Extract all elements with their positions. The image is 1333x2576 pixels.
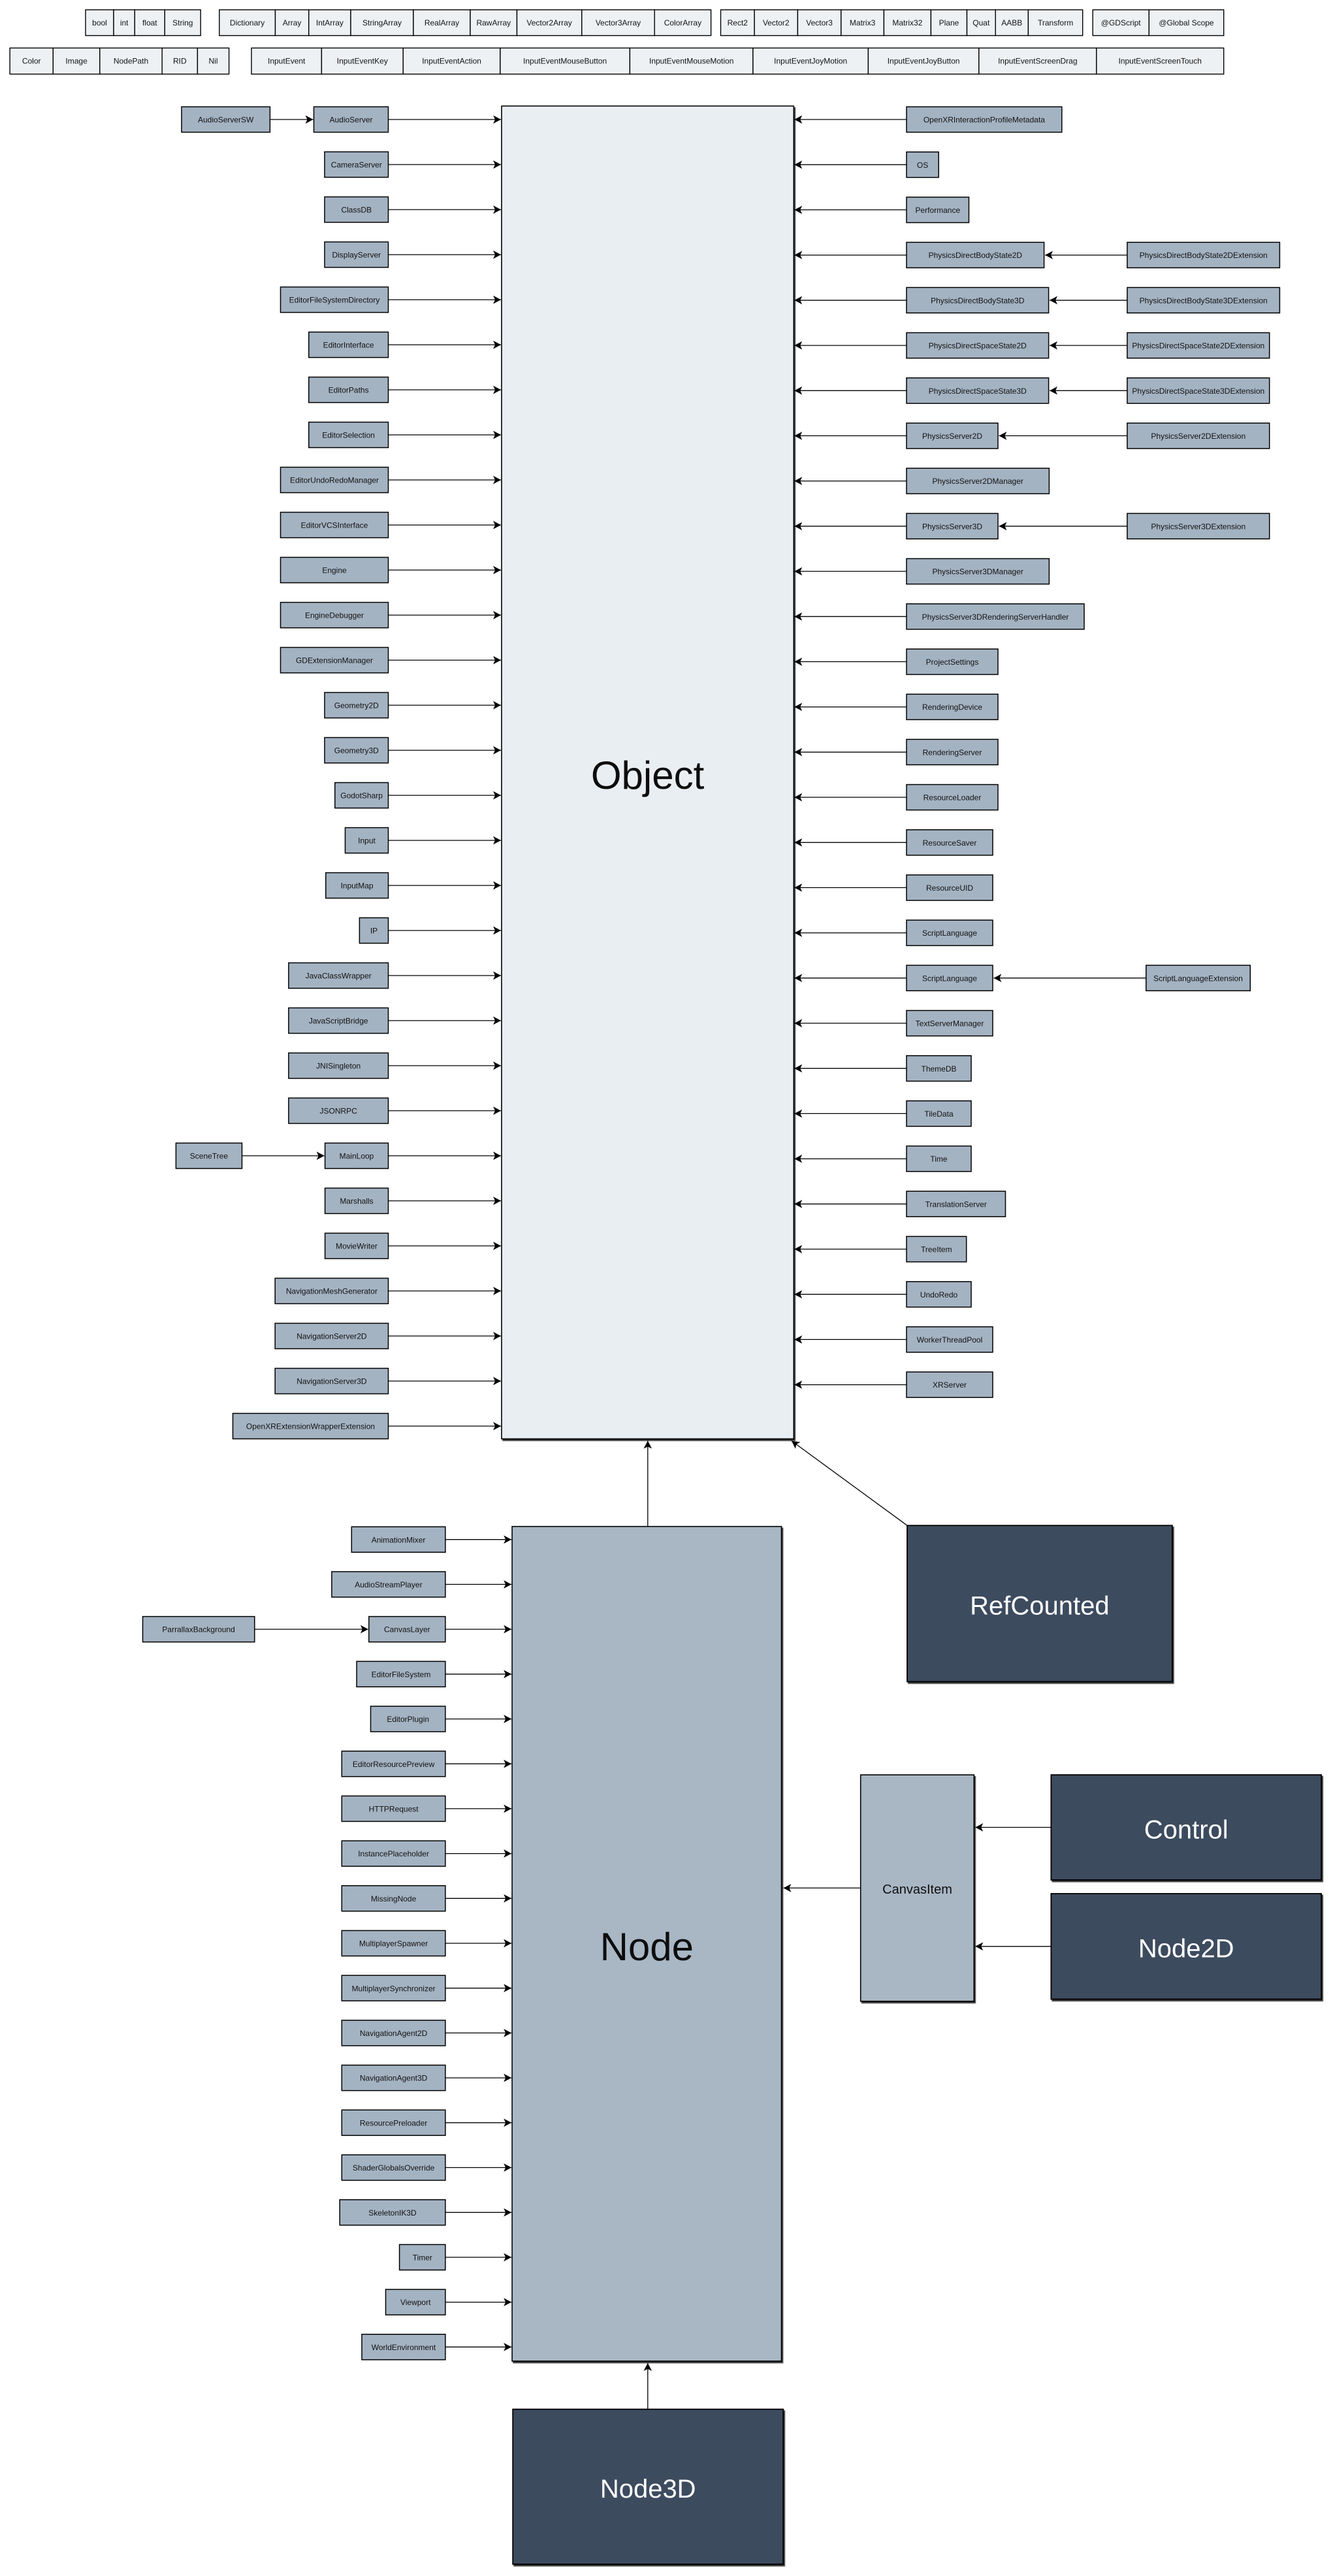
svg-text:ResourceSaver: ResourceSaver	[923, 838, 977, 848]
svg-text:Matrix3: Matrix3	[850, 18, 876, 27]
svg-text:ResourceLoader: ResourceLoader	[923, 793, 982, 803]
svg-text:Geometry3D: Geometry3D	[334, 746, 379, 755]
svg-text:SceneTree: SceneTree	[190, 1152, 229, 1161]
svg-text:AABB: AABB	[1001, 18, 1022, 27]
svg-text:EditorPaths: EditorPaths	[329, 386, 369, 395]
svg-text:float: float	[142, 18, 157, 27]
svg-text:Node3D: Node3D	[600, 2475, 696, 2504]
svg-text:ScriptLanguageExtension: ScriptLanguageExtension	[1153, 974, 1243, 983]
svg-text:Array: Array	[283, 18, 302, 27]
svg-text:SkeletonIK3D: SkeletonIK3D	[368, 2208, 417, 2218]
svg-text:InputEvent: InputEvent	[268, 57, 306, 66]
svg-text:EngineDebugger: EngineDebugger	[305, 611, 364, 620]
svg-text:ScriptLanguage: ScriptLanguage	[922, 974, 977, 983]
svg-text:Plane: Plane	[939, 18, 959, 27]
svg-text:Engine: Engine	[322, 566, 347, 575]
svg-text:NodePath: NodePath	[114, 57, 148, 66]
svg-text:String: String	[172, 18, 193, 27]
svg-text:InputEventScreenDrag: InputEventScreenDrag	[998, 57, 1077, 66]
svg-text:EditorFileSystem: EditorFileSystem	[372, 1670, 431, 1679]
svg-text:RenderingDevice: RenderingDevice	[922, 703, 982, 712]
svg-text:MovieWriter: MovieWriter	[336, 1242, 377, 1251]
svg-text:TranslationServer: TranslationServer	[925, 1200, 987, 1209]
svg-text:AudioStreamPlayer: AudioStreamPlayer	[355, 1580, 422, 1589]
svg-text:RawArray: RawArray	[476, 18, 511, 27]
svg-text:@GDScript: @GDScript	[1101, 18, 1142, 27]
svg-text:Vector3Array: Vector3Array	[596, 18, 641, 27]
svg-text:InputEventAction: InputEventAction	[422, 57, 481, 66]
svg-text:ParrallaxBackground: ParrallaxBackground	[162, 1625, 234, 1634]
svg-text:RealArray: RealArray	[425, 18, 459, 27]
svg-text:Input: Input	[358, 836, 376, 846]
svg-text:GodotSharp: GodotSharp	[340, 791, 383, 801]
svg-text:AnimationMixer: AnimationMixer	[372, 1535, 426, 1544]
svg-text:InputEventScreenTouch: InputEventScreenTouch	[1118, 57, 1201, 66]
svg-text:IntArray: IntArray	[316, 18, 344, 27]
svg-text:Image: Image	[65, 57, 88, 66]
svg-text:Control: Control	[1144, 1815, 1229, 1844]
svg-text:Timer: Timer	[413, 2253, 432, 2263]
svg-text:StringArray: StringArray	[362, 18, 402, 27]
svg-text:bool: bool	[92, 18, 107, 27]
svg-text:InputEventKey: InputEventKey	[337, 57, 388, 66]
svg-text:MultiplayerSpawner: MultiplayerSpawner	[359, 1939, 428, 1948]
svg-text:PhysicsDirectBodyState2DExtens: PhysicsDirectBodyState2DExtension	[1140, 251, 1268, 260]
svg-text:PhysicsDirectBodyState3DExtens: PhysicsDirectBodyState3DExtension	[1140, 296, 1268, 305]
svg-text:ProjectSettings: ProjectSettings	[926, 658, 979, 667]
svg-text:PhysicsDirectBodyState3D: PhysicsDirectBodyState3D	[931, 296, 1025, 305]
svg-text:Vector3: Vector3	[806, 18, 833, 27]
svg-text:EditorVCSInterface: EditorVCSInterface	[301, 521, 368, 530]
svg-text:Marshalls: Marshalls	[340, 1197, 373, 1206]
svg-text:NavigationServer2D: NavigationServer2D	[297, 1332, 367, 1341]
svg-text:ScriptLanguage: ScriptLanguage	[922, 929, 977, 938]
svg-text:IP: IP	[370, 927, 377, 936]
svg-text:Object: Object	[591, 754, 705, 797]
svg-text:UndoRedo: UndoRedo	[920, 1290, 958, 1299]
svg-text:Node: Node	[600, 1925, 694, 1969]
svg-text:ThemeDB: ThemeDB	[921, 1064, 956, 1073]
svg-text:Node2D: Node2D	[1138, 1935, 1234, 1964]
svg-text:Color: Color	[22, 57, 41, 66]
svg-text:DisplayServer: DisplayServer	[332, 251, 381, 260]
svg-text:OpenXRExtensionWrapperExtensio: OpenXRExtensionWrapperExtension	[246, 1422, 375, 1431]
svg-text:ResourcePreloader: ResourcePreloader	[360, 2118, 427, 2127]
svg-text:EditorUndoRedoManager: EditorUndoRedoManager	[290, 476, 379, 485]
svg-text:EditorFileSystemDirectory: EditorFileSystemDirectory	[289, 296, 380, 305]
svg-text:WorkerThreadPool: WorkerThreadPool	[917, 1335, 983, 1344]
svg-text:EditorSelection: EditorSelection	[322, 431, 375, 440]
svg-text:Viewport: Viewport	[400, 2298, 431, 2307]
svg-text:MultiplayerSynchronizer: MultiplayerSynchronizer	[352, 1984, 436, 1993]
svg-text:PhysicsDirectSpaceState2D: PhysicsDirectSpaceState2D	[929, 342, 1027, 351]
svg-text:AudioServer: AudioServer	[329, 116, 372, 125]
svg-text:JavaScriptBridge: JavaScriptBridge	[309, 1017, 368, 1026]
svg-text:TreeItem: TreeItem	[921, 1245, 952, 1254]
svg-text:Time: Time	[930, 1154, 948, 1164]
svg-text:PhysicsServer2DManager: PhysicsServer2DManager	[933, 477, 1023, 486]
svg-text:TileData: TileData	[924, 1109, 954, 1119]
svg-text:JavaClassWrapper: JavaClassWrapper	[306, 972, 372, 981]
svg-text:ColorArray: ColorArray	[664, 18, 701, 27]
svg-text:RefCounted: RefCounted	[970, 1592, 1109, 1621]
svg-text:GDExtensionManager: GDExtensionManager	[296, 656, 373, 665]
svg-text:InputEventMouseMotion: InputEventMouseMotion	[649, 57, 733, 66]
svg-text:Dictionary: Dictionary	[230, 18, 265, 27]
svg-text:CanvasLayer: CanvasLayer	[384, 1625, 430, 1634]
svg-text:WorldEnvironment: WorldEnvironment	[372, 2343, 436, 2352]
svg-text:NavigationAgent3D: NavigationAgent3D	[360, 2074, 428, 2083]
svg-text:InputMap: InputMap	[341, 882, 374, 891]
svg-text:InputEventJoyButton: InputEventJoyButton	[888, 57, 960, 66]
svg-text:PhysicsServer3DManager: PhysicsServer3DManager	[933, 567, 1023, 577]
svg-text:Rect2: Rect2	[728, 18, 748, 27]
svg-text:@Global Scope: @Global Scope	[1159, 18, 1214, 27]
svg-text:PhysicsServer3D: PhysicsServer3D	[922, 522, 982, 531]
svg-text:InputEventMouseButton: InputEventMouseButton	[523, 57, 607, 66]
svg-text:Vector2: Vector2	[763, 18, 790, 27]
svg-text:RenderingServer: RenderingServer	[923, 748, 982, 757]
svg-text:Geometry2D: Geometry2D	[334, 701, 379, 710]
svg-text:PhysicsDirectSpaceState3D: PhysicsDirectSpaceState3D	[929, 387, 1027, 396]
svg-text:PhysicsServer3DExtension: PhysicsServer3DExtension	[1151, 522, 1245, 531]
svg-text:HTTPRequest: HTTPRequest	[369, 1805, 419, 1814]
svg-text:ShaderGlobalsOverride: ShaderGlobalsOverride	[353, 2163, 435, 2172]
svg-text:AudioServerSW: AudioServerSW	[198, 116, 254, 125]
svg-text:PhysicsServer2DExtension: PhysicsServer2DExtension	[1151, 432, 1245, 441]
svg-text:Performance: Performance	[915, 206, 960, 215]
svg-text:EditorInterface: EditorInterface	[323, 341, 374, 350]
svg-text:Quat: Quat	[972, 18, 990, 27]
svg-text:JNISingleton: JNISingleton	[316, 1062, 361, 1071]
svg-text:CanvasItem: CanvasItem	[882, 1883, 952, 1897]
svg-text:EditorPlugin: EditorPlugin	[387, 1715, 429, 1724]
svg-text:JSONRPC: JSONRPC	[320, 1107, 358, 1116]
svg-text:ClassDB: ClassDB	[341, 206, 372, 215]
svg-text:ResourceUID: ResourceUID	[926, 883, 973, 893]
svg-text:NavigationAgent2D: NavigationAgent2D	[360, 2029, 428, 2038]
svg-text:MainLoop: MainLoop	[340, 1152, 374, 1161]
svg-text:InstancePlaceholder: InstancePlaceholder	[358, 1849, 429, 1858]
svg-text:Vector2Array: Vector2Array	[526, 18, 571, 27]
svg-text:int: int	[120, 18, 129, 27]
svg-text:CameraServer: CameraServer	[331, 161, 382, 170]
svg-text:MissingNode: MissingNode	[371, 1894, 417, 1903]
svg-text:PhysicsDirectSpaceState3DExten: PhysicsDirectSpaceState3DExtension	[1132, 387, 1264, 396]
svg-text:Transform: Transform	[1038, 18, 1073, 27]
svg-text:NavigationServer3D: NavigationServer3D	[297, 1377, 367, 1386]
svg-text:Matrix32: Matrix32	[892, 18, 922, 27]
svg-text:XRServer: XRServer	[933, 1380, 967, 1390]
svg-text:OpenXRInteractionProfileMetada: OpenXRInteractionProfileMetadata	[923, 116, 1045, 125]
svg-text:PhysicsServer3DRenderingServer: PhysicsServer3DRenderingServerHandler	[922, 612, 1069, 622]
svg-text:PhysicsServer2D: PhysicsServer2D	[922, 432, 982, 441]
svg-text:OS: OS	[917, 161, 928, 170]
svg-text:NavigationMeshGenerator: NavigationMeshGenerator	[286, 1287, 377, 1296]
svg-text:TextServerManager: TextServerManager	[916, 1019, 984, 1028]
svg-text:InputEventJoyMotion: InputEventJoyMotion	[774, 57, 847, 66]
svg-text:EditorResourcePreview: EditorResourcePreview	[353, 1760, 435, 1769]
svg-text:PhysicsDirectBodyState2D: PhysicsDirectBodyState2D	[929, 251, 1023, 260]
svg-text:PhysicsDirectSpaceState2DExten: PhysicsDirectSpaceState2DExtension	[1132, 342, 1264, 351]
svg-text:RID: RID	[173, 57, 187, 66]
svg-text:Nil: Nil	[209, 57, 218, 66]
